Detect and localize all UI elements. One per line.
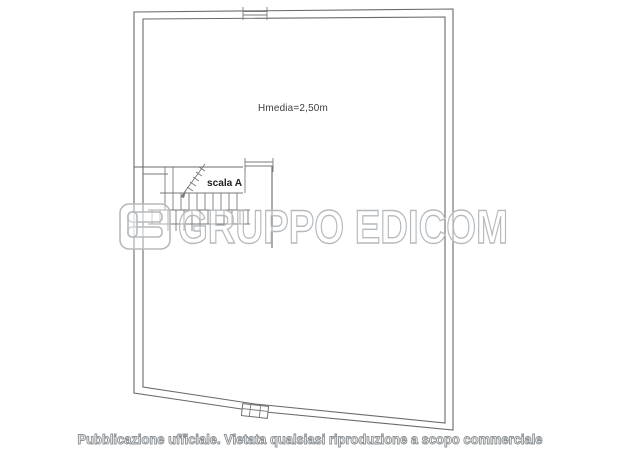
watermark-text: GRUPPO EDICOM [178, 200, 508, 253]
bottom-door-icon [241, 404, 268, 419]
footer-disclaimer: Pubblicazione ufficiale. Vietata qualsia… [78, 432, 543, 447]
room-height-label: Hmedia=2,50m [258, 102, 328, 114]
watermark: GRUPPO EDICOM [120, 200, 508, 253]
stair-name-label: scala A [207, 177, 242, 189]
stair-door-icon [245, 158, 273, 172]
edicom-logo-icon [120, 204, 170, 249]
floorplan-image: Hmedia=2,50m scala A GRUPPO EDICOM Pubbl… [0, 0, 620, 450]
